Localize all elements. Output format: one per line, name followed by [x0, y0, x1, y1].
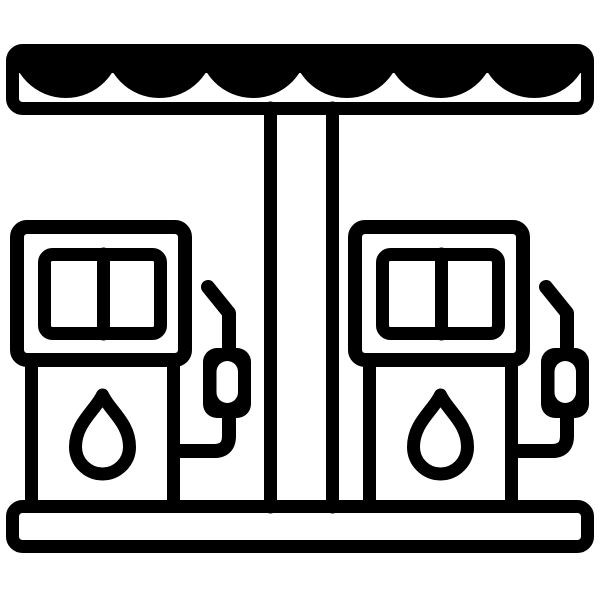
- fuel-pump-right: [355, 227, 589, 502]
- fuel-pump-left: [17, 227, 251, 502]
- pillar: [271, 108, 333, 507]
- gas-station-illustration: [0, 0, 600, 600]
- base-platform: [13, 507, 588, 547]
- canopy: [11, 0, 589, 109]
- gas-station-icon: [0, 0, 600, 600]
